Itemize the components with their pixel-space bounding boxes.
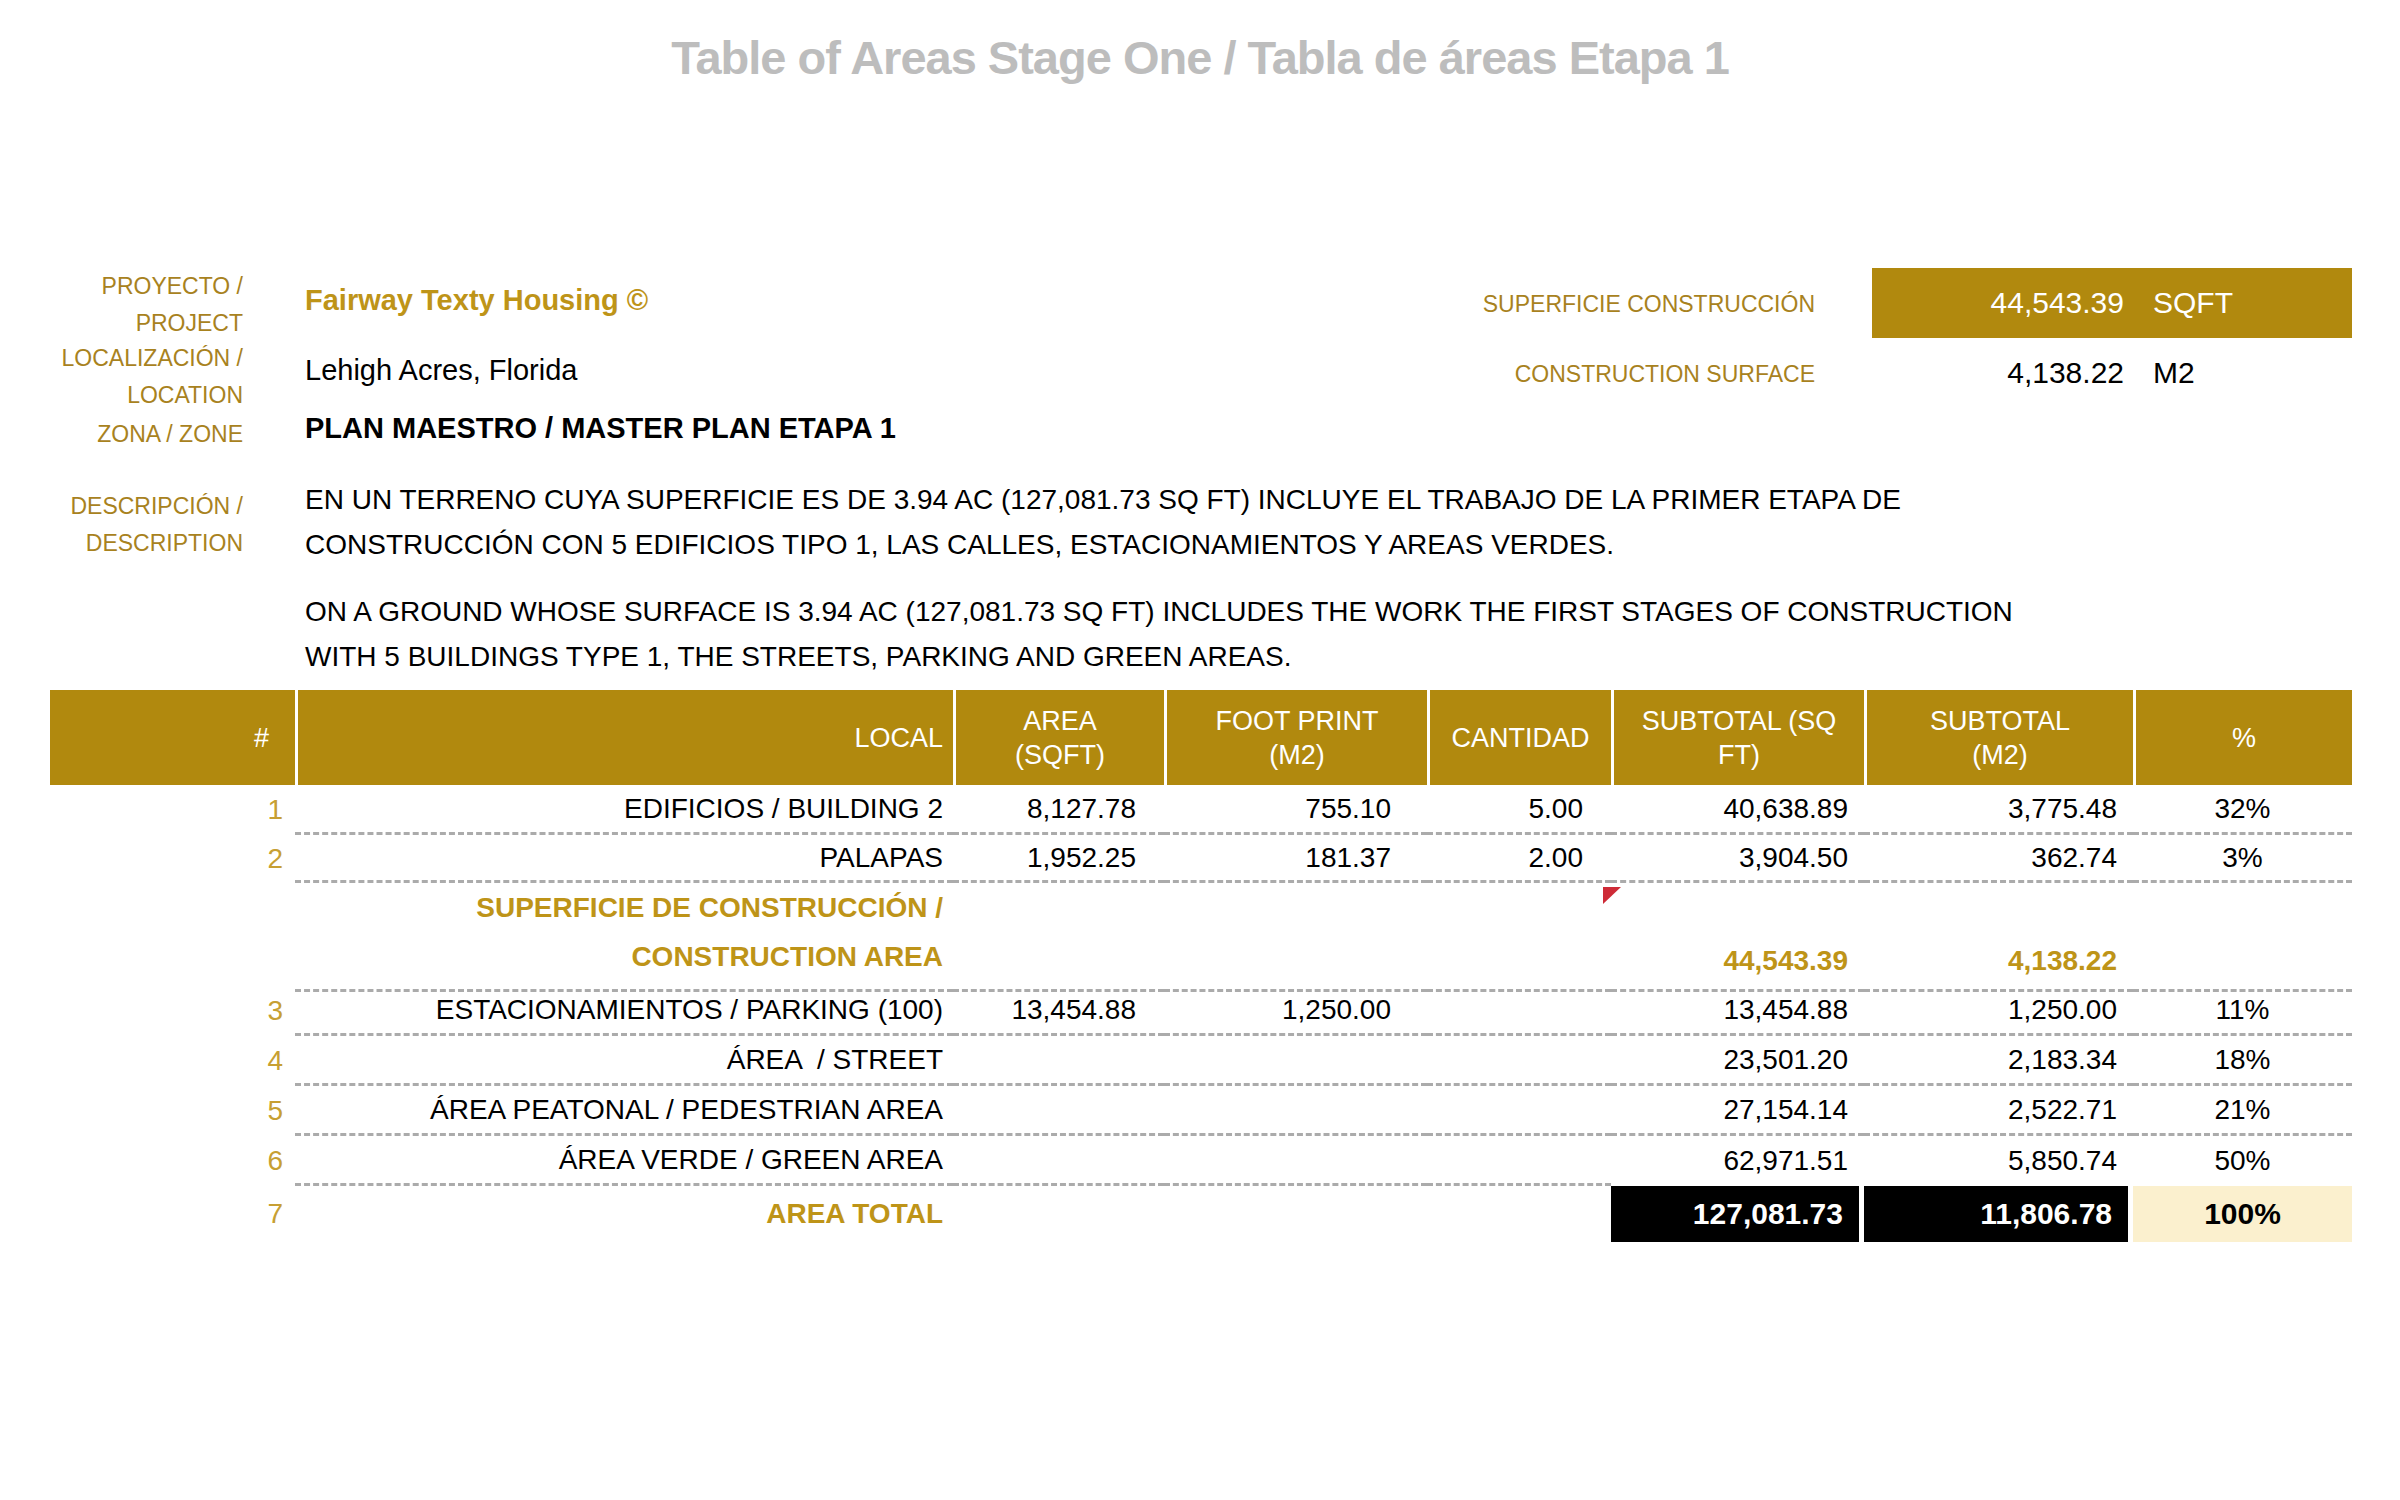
table-cell-row-number[interactable]: 4 (50, 1036, 295, 1086)
table-row-5: 4ÁREA / STREET23,501.202,183.3418% (50, 1036, 2352, 1086)
table-cell-row-number[interactable]: 6 (50, 1136, 295, 1186)
table-cell-cantidad[interactable] (1427, 986, 1611, 1036)
construction-surface-m2-row: 4,138.22 M2 (1872, 345, 2352, 401)
table-cell-cantidad[interactable]: 2.00 (1427, 835, 1611, 883)
table-cell-cantidad[interactable] (1427, 1086, 1611, 1136)
location-value: Lehigh Acres, Florida (305, 350, 577, 390)
table-cell-area-sqft[interactable] (953, 1036, 1164, 1086)
table-cell-subtotal-sqft[interactable]: 3,904.50 (1611, 835, 1864, 883)
table-cell-local[interactable]: ÁREA / STREET (295, 1036, 953, 1086)
table-row-7: 6ÁREA VERDE / GREEN AREA62,971.515,850.7… (50, 1136, 2352, 1186)
description-paragraph-spanish: EN UN TERRENO CUYA SUPERFICIE ES DE 3.94… (305, 477, 2325, 567)
table-row-3: SUPERFICIE DE CONSTRUCCIÓN / CONSTRUCTIO… (50, 883, 2352, 986)
table-cell-subtotal-sqft[interactable]: 23,501.20 (1611, 1036, 1864, 1086)
table-cell-subtotal-m2[interactable]: 5,850.74 (1864, 1136, 2133, 1186)
table-cell-percent[interactable]: 11% (2133, 986, 2352, 1036)
table-body: 1EDIFICIOS / BUILDING 28,127.78755.105.0… (50, 785, 2352, 1242)
table-cell-footprint-m2[interactable]: 181.37 (1164, 835, 1427, 883)
table-cell-percent[interactable]: 21% (2133, 1086, 2352, 1136)
table-cell-subtotal-m2[interactable]: 4,138.22 (1864, 883, 2133, 992)
table-cell-footprint-m2[interactable] (1164, 1136, 1427, 1186)
table-cell-area-sqft[interactable]: 13,454.88 (953, 986, 1164, 1036)
table-cell-subtotal-m2[interactable]: 1,250.00 (1864, 986, 2133, 1036)
table-row-1: 1EDIFICIOS / BUILDING 28,127.78755.105.0… (50, 785, 2352, 835)
table-cell-subtotal-sqft[interactable]: 27,154.14 (1611, 1086, 1864, 1136)
table-cell-subtotal-sqft[interactable]: 44,543.39 (1611, 883, 1864, 992)
table-header-cell-percent: % (2133, 690, 2352, 785)
red-flag-icon[interactable] (1603, 887, 1621, 904)
table-cell-area-sqft[interactable] (953, 1186, 1164, 1242)
table-cell-local[interactable]: AREA TOTAL (295, 1186, 953, 1242)
table-header-cell-cantidad: CANTIDAD (1427, 690, 1611, 785)
table-header-cell-subtotal-m2: SUBTOTAL (M2) (1864, 690, 2133, 785)
table-cell-local[interactable]: SUPERFICIE DE CONSTRUCCIÓN / CONSTRUCTIO… (295, 883, 953, 992)
spreadsheet-page: Table of Areas Stage One / Tabla de área… (0, 0, 2400, 1500)
table-cell-cantidad[interactable] (1427, 883, 1611, 992)
table-row-4: 3ESTACIONAMIENTOS / PARKING (100)13,454.… (50, 986, 2352, 1036)
table-cell-area-sqft[interactable] (953, 1086, 1164, 1136)
table-cell-footprint-m2[interactable] (1164, 1036, 1427, 1086)
table-cell-cantidad[interactable] (1427, 1186, 1611, 1242)
table-cell-area-sqft[interactable]: 1,952.25 (953, 835, 1164, 883)
table-cell-area-sqft[interactable] (953, 1136, 1164, 1186)
table-cell-row-number[interactable]: 1 (50, 785, 295, 835)
table-cell-cantidad[interactable]: 5.00 (1427, 785, 1611, 835)
table-cell-footprint-m2[interactable] (1164, 1086, 1427, 1136)
construction-surface-m2-unit: M2 (2153, 356, 2195, 390)
table-cell-subtotal-sqft[interactable]: 127,081.73 (1611, 1186, 1864, 1242)
table-row-2: 2PALAPAS1,952.25181.372.003,904.50362.74… (50, 835, 2352, 883)
table-cell-percent[interactable]: 18% (2133, 1036, 2352, 1086)
table-cell-area-sqft[interactable]: 8,127.78 (953, 785, 1164, 835)
page-title: Table of Areas Stage One / Tabla de área… (0, 30, 2400, 85)
table-header-cell-local: LOCAL (295, 690, 953, 785)
table-cell-subtotal-m2[interactable]: 11,806.78 (1864, 1186, 2133, 1242)
table-cell-local[interactable]: EDIFICIOS / BUILDING 2 (295, 785, 953, 835)
project-value: Fairway Texty Housing © (305, 280, 648, 320)
table-cell-subtotal-sqft[interactable]: 40,638.89 (1611, 785, 1864, 835)
description-paragraph-english: ON A GROUND WHOSE SURFACE IS 3.94 AC (12… (305, 589, 2325, 679)
table-header-cell-area-sqft: AREA (SQFT) (953, 690, 1164, 785)
construction-surface-label-es: SUPERFICIE CONSTRUCCIÓN (1250, 291, 1815, 318)
table-cell-row-number[interactable] (50, 883, 295, 992)
location-label: LOCALIZACIÓN / LOCATION (48, 340, 243, 414)
table-cell-subtotal-m2[interactable]: 362.74 (1864, 835, 2133, 883)
table-cell-percent[interactable] (2133, 883, 2352, 992)
table-cell-local[interactable]: ÁREA PEATONAL / PEDESTRIAN AREA (295, 1086, 953, 1136)
table-cell-cantidad[interactable] (1427, 1036, 1611, 1086)
table-cell-percent[interactable]: 100% (2133, 1186, 2352, 1242)
table-cell-area-sqft[interactable] (953, 883, 1164, 992)
table-cell-footprint-m2[interactable] (1164, 1186, 1427, 1242)
table-cell-subtotal-sqft[interactable]: 13,454.88 (1611, 986, 1864, 1036)
zone-value: PLAN MAESTRO / MASTER PLAN ETAPA 1 (305, 408, 896, 448)
construction-surface-label-en: CONSTRUCTION SURFACE (1250, 361, 1815, 388)
table-cell-row-number[interactable]: 5 (50, 1086, 295, 1136)
table-header-row: #LOCALAREA (SQFT)FOOT PRINT (M2)CANTIDAD… (50, 690, 2352, 785)
construction-surface-sqft-box: 44,543.39 SQFT (1872, 268, 2352, 338)
table-cell-row-number[interactable]: 7 (50, 1186, 295, 1242)
table-cell-subtotal-m2[interactable]: 2,522.71 (1864, 1086, 2133, 1136)
zone-label: ZONA / ZONE (48, 416, 243, 453)
construction-surface-sqft-value: 44,543.39 (1872, 286, 2124, 320)
table-header-cell-footprint-m2: FOOT PRINT (M2) (1164, 690, 1427, 785)
table-cell-subtotal-sqft[interactable]: 62,971.51 (1611, 1136, 1864, 1186)
table-cell-footprint-m2[interactable] (1164, 883, 1427, 992)
table-cell-cantidad[interactable] (1427, 1136, 1611, 1186)
construction-surface-sqft-unit: SQFT (2153, 286, 2233, 320)
table-cell-local[interactable]: PALAPAS (295, 835, 953, 883)
table-cell-percent[interactable]: 32% (2133, 785, 2352, 835)
description-label: DESCRIPCIÓN / DESCRIPTION (48, 488, 243, 562)
table-header-cell-row-number: # (50, 690, 295, 785)
table-cell-subtotal-m2[interactable]: 3,775.48 (1864, 785, 2133, 835)
table-cell-percent[interactable]: 3% (2133, 835, 2352, 883)
table-cell-footprint-m2[interactable]: 755.10 (1164, 785, 1427, 835)
table-cell-percent[interactable]: 50% (2133, 1136, 2352, 1186)
table-cell-subtotal-m2[interactable]: 2,183.34 (1864, 1036, 2133, 1086)
table-cell-local[interactable]: ÁREA VERDE / GREEN AREA (295, 1136, 953, 1186)
table-cell-local[interactable]: ESTACIONAMIENTOS / PARKING (100) (295, 986, 953, 1036)
construction-surface-m2-value: 4,138.22 (1872, 356, 2124, 390)
table-row-8: 7AREA TOTAL127,081.7311,806.78100% (50, 1186, 2352, 1242)
table-cell-row-number[interactable]: 2 (50, 835, 295, 883)
areas-table: #LOCALAREA (SQFT)FOOT PRINT (M2)CANTIDAD… (50, 690, 2352, 1242)
table-cell-row-number[interactable]: 3 (50, 986, 295, 1036)
table-header-cell-subtotal-sqft: SUBTOTAL (SQ FT) (1611, 690, 1864, 785)
project-label: PROYECTO / PROJECT (48, 268, 243, 342)
table-row-6: 5ÁREA PEATONAL / PEDESTRIAN AREA27,154.1… (50, 1086, 2352, 1136)
table-cell-footprint-m2[interactable]: 1,250.00 (1164, 986, 1427, 1036)
